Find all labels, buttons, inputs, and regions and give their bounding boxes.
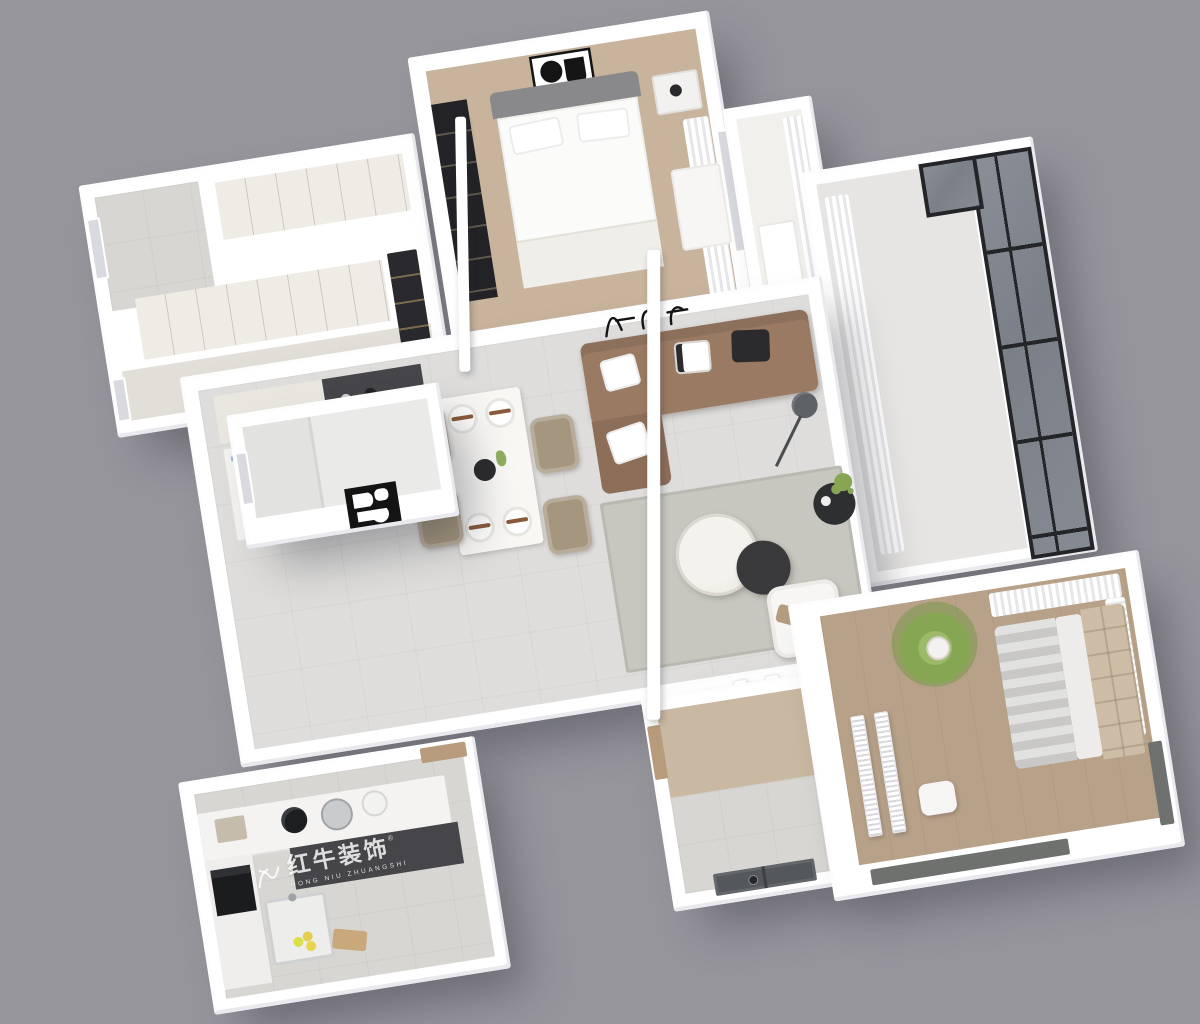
kettle bbox=[279, 805, 309, 835]
master-bed bbox=[489, 70, 668, 291]
bedroom2-stool bbox=[917, 780, 958, 817]
kitchen-sink bbox=[264, 891, 336, 966]
entry-door-seam bbox=[761, 866, 767, 888]
second-bedroom-wing bbox=[788, 550, 1186, 902]
door-handle bbox=[748, 874, 759, 885]
linear-pendant-light bbox=[647, 250, 660, 720]
dining-artwork bbox=[343, 480, 403, 530]
render-canvas: 红牛装饰® HONG NIU ZHUANGSHI bbox=[0, 0, 1200, 1024]
plant-pot bbox=[925, 635, 952, 662]
sofa-pillow-dark bbox=[731, 329, 770, 362]
dining-chair bbox=[528, 413, 580, 475]
table-lamp bbox=[669, 84, 683, 98]
white-kettle bbox=[360, 788, 390, 818]
sofa-pillow-white bbox=[599, 352, 642, 392]
balcony-corner-glazing bbox=[918, 155, 984, 217]
water-purifier bbox=[214, 815, 247, 843]
serving-tray bbox=[472, 457, 497, 482]
bed2 bbox=[993, 603, 1147, 774]
side-table-plant bbox=[833, 472, 854, 493]
kitchen-wing: 红牛装饰® HONG NIU ZHUANGSHI bbox=[178, 736, 511, 1015]
dining-chair bbox=[541, 494, 593, 556]
hongniu-logo-icon bbox=[254, 863, 284, 890]
sofa-pillow-pattern bbox=[673, 340, 712, 375]
place-setting bbox=[483, 396, 517, 430]
wardrobe-upper bbox=[215, 153, 412, 240]
cutting-board bbox=[332, 928, 368, 951]
bed-pillow bbox=[576, 107, 631, 143]
lemons bbox=[302, 931, 313, 942]
floor-plan: 红牛装饰® HONG NIU ZHUANGSHI bbox=[0, 0, 1195, 1024]
rice-cooker bbox=[319, 796, 356, 833]
side-table-vase bbox=[820, 495, 831, 506]
watermark-registered: ® bbox=[387, 835, 393, 843]
place-setting bbox=[445, 402, 479, 436]
place-setting bbox=[500, 504, 534, 538]
nightstand bbox=[651, 69, 703, 116]
place-setting bbox=[463, 510, 497, 544]
built-in-oven bbox=[210, 865, 257, 917]
table-plant bbox=[495, 450, 507, 467]
faucet bbox=[288, 893, 297, 902]
